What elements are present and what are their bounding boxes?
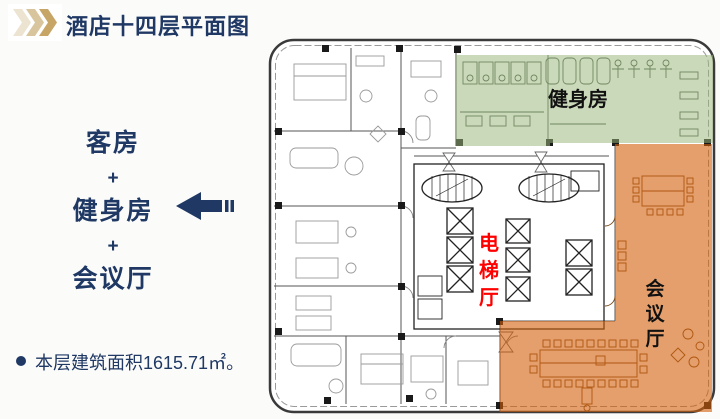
elevator-hall-label: 电 梯 厅 (479, 232, 499, 309)
floorplan-svg: 健身房 电 梯 厅 会 议 厅 (266, 36, 718, 416)
slide: 酒店十四层平面图 客房 + 健身房 + 会议厅 本层建筑面积1615.71㎡。 (0, 0, 720, 419)
bullet-dot-icon (16, 356, 26, 366)
svg-text:厅: 厅 (645, 329, 664, 350)
svg-text:电: 电 (479, 232, 499, 255)
gym-label: 健身房 (548, 87, 608, 111)
page-title: 酒店十四层平面图 (66, 9, 250, 41)
svg-text:议: 议 (645, 303, 665, 325)
summary-gym: 健身房 (28, 199, 198, 224)
svg-text:厅: 厅 (479, 287, 499, 309)
svg-text:梯: 梯 (479, 258, 499, 282)
chevrons-icon (13, 9, 57, 36)
summary-guestrooms: 客房 (28, 131, 198, 156)
floorplan-image: 健身房 电 梯 厅 会 议 厅 (266, 36, 718, 416)
summary-conference: 会议厅 (28, 267, 198, 292)
summary-stack: 客房 + 健身房 + 会议厅 (28, 131, 198, 292)
chevrons-logo (8, 4, 62, 41)
footnote-row: 本层建筑面积1615.71㎡。 (16, 349, 244, 375)
left-arrow-icon (174, 189, 238, 223)
svg-text:会: 会 (645, 277, 664, 300)
footnote-text: 本层建筑面积1615.71㎡。 (35, 349, 244, 375)
plus-sign: + (28, 237, 198, 256)
plus-sign: + (28, 169, 198, 188)
conference-hall-label: 会 议 厅 (645, 277, 665, 350)
